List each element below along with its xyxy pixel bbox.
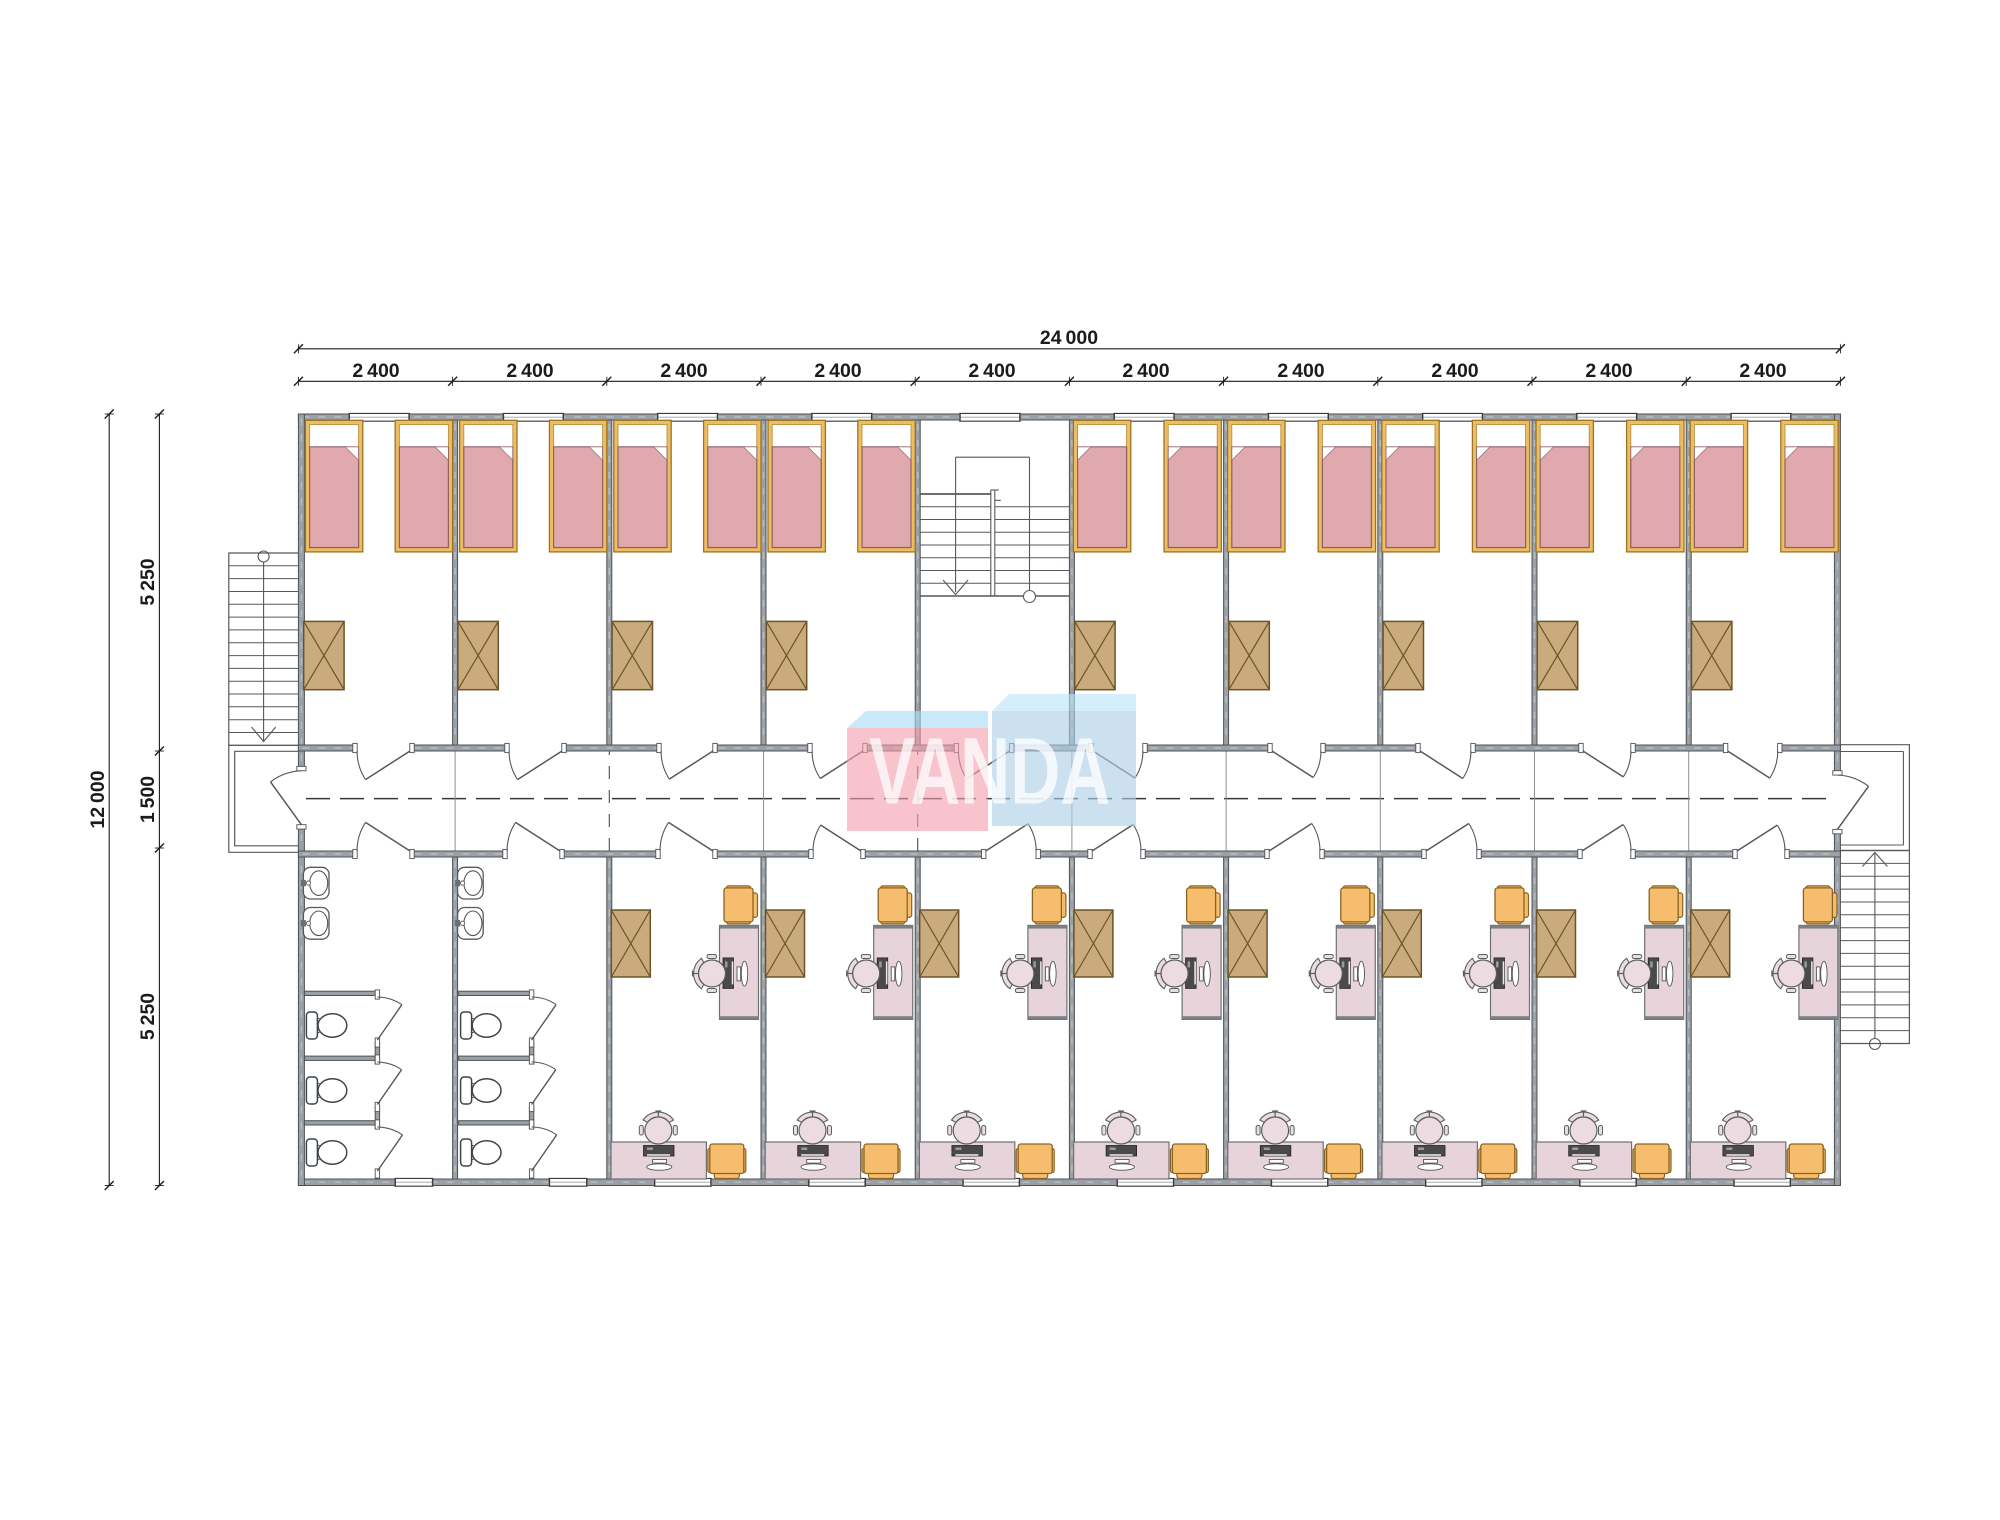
svg-text:2 400: 2 400 bbox=[506, 360, 553, 382]
svg-text:2 400: 2 400 bbox=[814, 360, 861, 382]
svg-text:2 400: 2 400 bbox=[1431, 360, 1478, 382]
svg-text:VANDA: VANDA bbox=[869, 718, 1110, 824]
svg-text:1 500: 1 500 bbox=[137, 776, 159, 823]
svg-text:5 250: 5 250 bbox=[137, 558, 159, 605]
svg-text:2 400: 2 400 bbox=[1585, 360, 1632, 382]
svg-text:2 400: 2 400 bbox=[1122, 360, 1169, 382]
svg-text:5 250: 5 250 bbox=[137, 993, 159, 1040]
svg-text:2 400: 2 400 bbox=[968, 360, 1015, 382]
svg-text:2 400: 2 400 bbox=[660, 360, 707, 382]
svg-text:2 400: 2 400 bbox=[1739, 360, 1786, 382]
svg-text:24 000: 24 000 bbox=[1040, 327, 1098, 349]
svg-text:12 000: 12 000 bbox=[87, 770, 109, 828]
svg-text:2 400: 2 400 bbox=[352, 360, 399, 382]
svg-text:2 400: 2 400 bbox=[1277, 360, 1324, 382]
